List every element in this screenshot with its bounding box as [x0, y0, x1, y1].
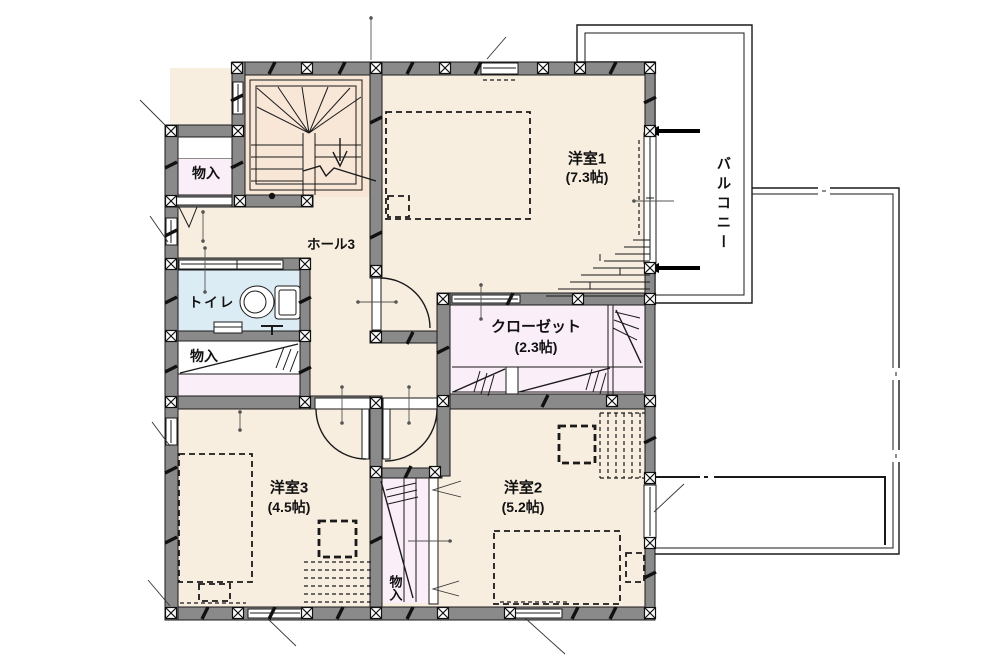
window-top-wall — [481, 37, 518, 80]
label-closet-size: (2.3帖) — [515, 339, 558, 355]
stair-newel-post — [269, 193, 275, 199]
label-storage-top-left: 物入 — [192, 165, 220, 181]
label-room3-name: 洋室3 — [270, 479, 308, 496]
label-hall: ホール3 — [307, 237, 355, 253]
label-storage-bottom-mid: 物入 — [387, 575, 402, 601]
floor-plan-page: { "plan_type": "floor-plan", "rooms": { … — [0, 0, 1000, 660]
label-room1-size: (7.3帖) — [566, 169, 609, 185]
door-opening-room3 — [315, 398, 370, 409]
window-room2-right — [644, 484, 684, 538]
label-toilet: トイレ — [189, 295, 236, 311]
floor-storage-ml — [178, 374, 300, 396]
label-balcony: バルコニー — [714, 156, 731, 254]
label-room2-size: (5.2帖) — [502, 499, 545, 515]
label-storage-mid-left: 物入 — [190, 348, 218, 364]
toilet-sliding-door — [179, 260, 283, 269]
label-room2-name: 洋室2 — [504, 479, 542, 496]
label-closet-name: クローゼット — [491, 318, 581, 335]
door-opening-room2 — [383, 398, 437, 409]
floor-stairs — [243, 73, 370, 197]
label-room3-size: (4.5帖) — [268, 499, 311, 515]
label-room1-name: 洋室1 — [568, 150, 606, 167]
window-bottom-room3 — [248, 609, 302, 646]
storage-tl-shelf — [177, 137, 238, 159]
